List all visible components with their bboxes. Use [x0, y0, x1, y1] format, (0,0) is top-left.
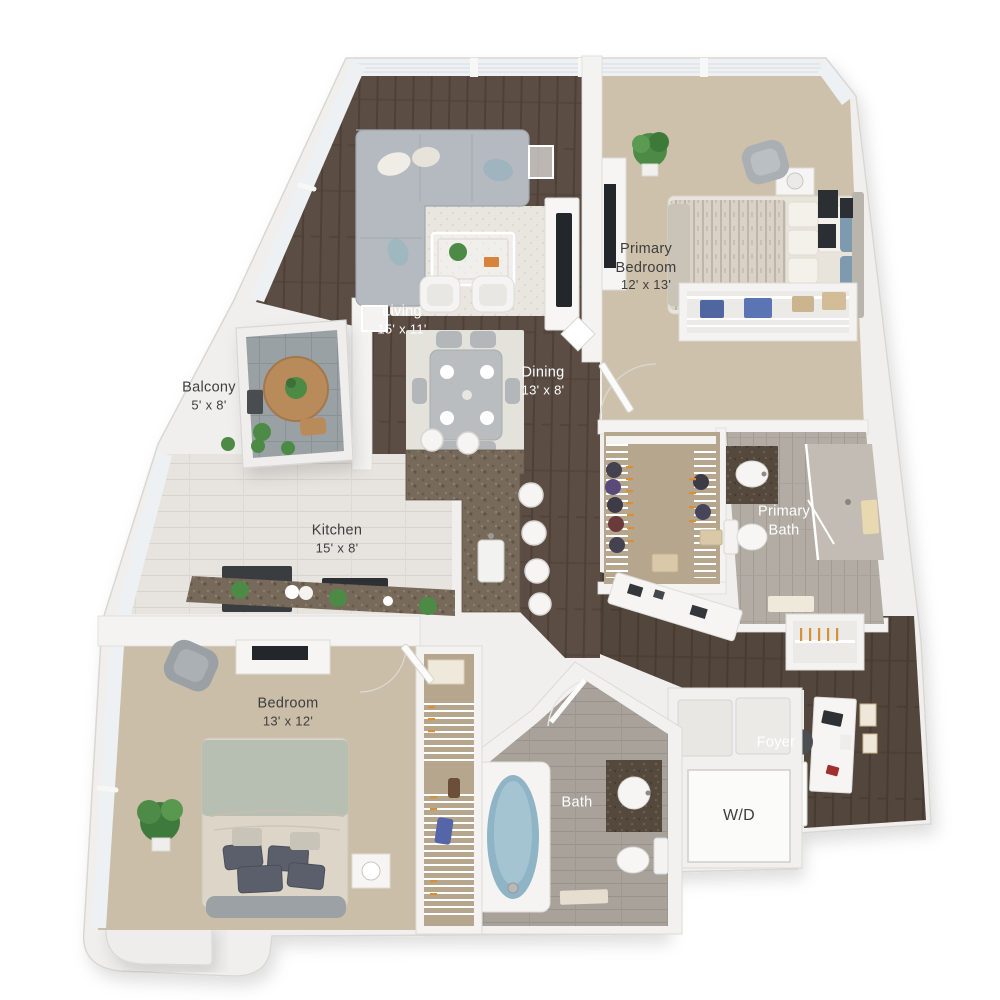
balcony-stool — [299, 417, 326, 436]
dining-dims: 13' x 8' — [522, 382, 565, 399]
tv-screen — [556, 213, 572, 307]
bathtub — [476, 762, 550, 912]
dining-title: Dining — [522, 363, 565, 382]
living-title: Living — [377, 302, 426, 321]
primary-reach-in-closet — [679, 283, 857, 341]
balcony-title: Balcony — [182, 378, 236, 397]
wall-living-primary — [582, 56, 602, 362]
primary-bedroom-title-1: Primary — [616, 240, 677, 259]
island-sink — [478, 540, 504, 582]
bedroom-title: Bedroom — [258, 694, 319, 713]
label-balcony: Balcony 5' x 8' — [182, 378, 236, 413]
kitchen-title: Kitchen — [312, 521, 362, 540]
table-books — [484, 257, 499, 267]
label-washer-dryer: W/D — [723, 806, 755, 826]
faucet — [488, 533, 494, 539]
label-living: Living 15' x 11' — [377, 302, 426, 337]
living-dims: 15' x 11' — [377, 321, 426, 338]
armchair-2 — [472, 276, 514, 312]
primary-bedroom-dims: 12' x 13' — [616, 277, 677, 294]
kitchen-dims: 15' x 8' — [312, 540, 362, 557]
label-kitchen: Kitchen 15' x 8' — [312, 521, 362, 556]
lamp — [787, 173, 803, 189]
bedroom-tv — [252, 646, 308, 660]
washer-dryer-title: W/D — [723, 806, 755, 826]
desk — [810, 697, 857, 793]
balcony-dims: 5' x 8' — [182, 397, 236, 414]
label-dining: Dining 13' x 8' — [522, 363, 565, 398]
label-primary-bedroom: Primary Bedroom 12' x 13' — [616, 240, 677, 294]
bath-mat — [560, 889, 608, 905]
primary-bath-title-2: Bath — [758, 521, 810, 540]
walk-in-closet — [604, 432, 722, 584]
side-table-2 — [529, 146, 553, 178]
bath-sink — [618, 777, 650, 809]
balcony-grill — [247, 390, 263, 414]
label-bedroom: Bedroom 13' x 12' — [258, 694, 319, 729]
dresser — [236, 640, 330, 674]
bath-title: Bath — [561, 794, 592, 813]
bedroom-closet — [416, 646, 482, 934]
primary-bath-mat — [768, 596, 814, 612]
table-plant — [449, 243, 467, 261]
bedroom-dims: 13' x 12' — [258, 713, 319, 730]
primary-bedroom-title-2: Bedroom — [616, 259, 677, 278]
wall-suite-hallway — [598, 420, 868, 434]
floor-plan-drawing — [0, 0, 1000, 1000]
tub-faucet — [508, 883, 518, 893]
laundry-closet — [668, 688, 802, 868]
balcony-plant-2 — [253, 423, 271, 441]
bed-bench — [206, 896, 346, 918]
towel — [861, 499, 879, 534]
closet-box — [652, 554, 678, 572]
foyer-title: Foyer — [757, 734, 796, 753]
label-foyer: Foyer — [757, 734, 796, 753]
label-bath: Bath — [561, 794, 592, 813]
bed — [202, 738, 348, 918]
bedroom-nightstand — [352, 854, 390, 888]
bed-duvet — [202, 740, 348, 816]
label-primary-bath: Primary Bath — [758, 502, 810, 539]
primary-tv — [604, 184, 616, 268]
primary-bath-title-1: Primary — [758, 502, 810, 521]
floor-plan-image: Balcony 5' x 8' Living 15' x 11' Dining … — [0, 0, 1000, 1000]
coat-closet — [786, 614, 864, 670]
washer — [678, 700, 732, 756]
